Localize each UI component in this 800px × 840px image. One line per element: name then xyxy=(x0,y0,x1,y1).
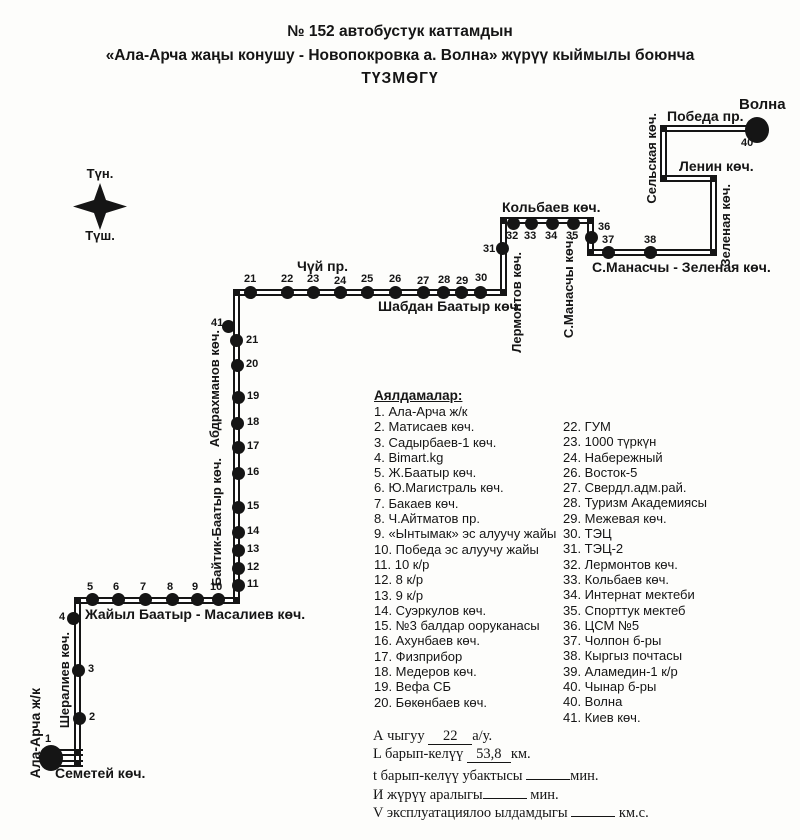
legend-column-left: 1. Ала-Арча ж/к2. Матисаев көч.3. Садырб… xyxy=(374,404,556,710)
stat-unit: км. xyxy=(511,746,531,762)
stop-number: 4 xyxy=(59,611,65,623)
legend-item: 35. Спорттук мектеб xyxy=(563,603,707,618)
legend-item: 8. Ч.Айтматов пр. xyxy=(374,511,556,526)
stop-dot xyxy=(232,441,245,454)
legend-item: 2. Матисаев көч. xyxy=(374,419,556,434)
legend-item: 22. ГУМ xyxy=(563,419,707,434)
legend-item: 3. Садырбаев-1 көч. xyxy=(374,435,556,450)
stop-number: 11 xyxy=(247,578,259,590)
route-scheme-page: № 152 автобустук каттамдын «Ала-Арча жаң… xyxy=(0,0,800,840)
stop-dot xyxy=(166,593,179,606)
street-label: Ала-Арча ж/к xyxy=(28,688,43,778)
stop-number: 7 xyxy=(140,581,146,593)
stop-dot xyxy=(232,526,245,539)
stop-number: 26 xyxy=(389,273,401,285)
legend-item: 36. ЦСМ №5 xyxy=(563,618,707,633)
stop-dot xyxy=(191,593,204,606)
stop-dot xyxy=(334,286,347,299)
route-corner xyxy=(660,175,667,182)
stat-value: 22 xyxy=(428,729,472,745)
stop-number: 15 xyxy=(247,500,259,512)
stop-number: 25 xyxy=(361,273,373,285)
street-label: Волна xyxy=(739,97,786,113)
stop-number: 38 xyxy=(644,234,656,246)
legend-item: 14. Суэркулов көч. xyxy=(374,603,556,618)
stop-dot xyxy=(232,467,245,480)
stop-dot xyxy=(232,544,245,557)
legend-item: 24. Набережный xyxy=(563,450,707,465)
stop-number: 20 xyxy=(246,358,258,370)
stop-number: 21 xyxy=(246,334,258,346)
stat-line: И жүрүү аралыгы мин. xyxy=(373,783,649,801)
stop-number: 28 xyxy=(438,274,450,286)
stop-number: 36 xyxy=(598,221,610,233)
route-corner xyxy=(710,175,717,182)
street-label: Семетей көч. xyxy=(55,766,145,781)
legend-title: Аялдамалар: xyxy=(374,388,462,403)
stop-number: 23 xyxy=(307,273,319,285)
stop-number: 2 xyxy=(89,711,95,723)
stop-dot xyxy=(496,242,509,255)
stop-number: 29 xyxy=(456,275,468,287)
stop-dot xyxy=(602,246,615,259)
street-label: Кольбаев көч. xyxy=(502,200,601,215)
stop-dot xyxy=(231,359,244,372)
stop-dot xyxy=(139,593,152,606)
legend-item: 13. 9 к/р xyxy=(374,588,556,603)
legend-item: 16. Ахунбаев көч. xyxy=(374,633,556,648)
stop-dot xyxy=(389,286,402,299)
stop-dot xyxy=(232,501,245,514)
route-segment xyxy=(660,175,716,182)
legend-item: 28. Туризм Академиясы xyxy=(563,495,707,510)
route-corner xyxy=(233,597,240,604)
stop-dot xyxy=(644,246,657,259)
stat-line: А чыгуу 22а/у. xyxy=(373,728,649,746)
legend-item: 30. ТЭЦ xyxy=(563,526,707,541)
street-label: Чүй пр. xyxy=(297,259,348,274)
stop-number: 5 xyxy=(87,581,93,593)
stat-value: 53,8 xyxy=(467,747,511,763)
stop-dot xyxy=(232,562,245,575)
legend-item: 10. Победа эс алуучу жайы xyxy=(374,542,556,557)
stop-dot xyxy=(67,612,80,625)
stop-dot xyxy=(232,579,245,592)
stop-number: 27 xyxy=(417,275,429,287)
route-corner xyxy=(587,217,594,224)
legend-item: 20. Бөкөнбаев көч. xyxy=(374,695,556,710)
legend-item: 11. 10 к/р xyxy=(374,557,556,572)
stop-dot xyxy=(112,593,125,606)
stop-number: 17 xyxy=(247,440,259,452)
stat-label: V эксплуатациялоо ылдамдыгы xyxy=(373,805,571,821)
street-label: Жайыл Баатыр - Масалиев көч. xyxy=(85,607,305,622)
legend-column-right: 22. ГУМ23. 1000 түркүн24. Набережный26. … xyxy=(563,419,707,725)
legend-item: 18. Медеров көч. xyxy=(374,664,556,679)
stop-dot xyxy=(525,217,538,230)
stop-dot xyxy=(361,286,374,299)
route-corner xyxy=(500,289,507,296)
legend-item: 6. Ю.Магистраль көч. xyxy=(374,480,556,495)
street-label: С.Манасчы көч. xyxy=(562,237,576,338)
stop-number: 40 xyxy=(741,137,753,149)
legend-item: 1. Ала-Арча ж/к xyxy=(374,404,556,419)
stop-number: 41 xyxy=(211,317,223,329)
street-label: Лермонтов көч. xyxy=(510,252,524,353)
stop-dot xyxy=(417,286,430,299)
route-corner xyxy=(233,289,240,296)
stat-value xyxy=(526,764,570,780)
stop-number: 19 xyxy=(247,390,259,402)
stop-number: 12 xyxy=(247,561,259,573)
stop-dot xyxy=(455,286,468,299)
route-corner xyxy=(74,597,81,604)
stop-dot xyxy=(507,217,520,230)
stat-value xyxy=(483,783,527,799)
stop-number: 18 xyxy=(247,416,259,428)
legend-item: 4. Bimart.kg xyxy=(374,450,556,465)
stop-number: 1 xyxy=(45,733,51,745)
street-label: Зеленая көч. xyxy=(719,184,733,267)
legend-item: 15. №3 балдар ооруканасы xyxy=(374,618,556,633)
stop-dot xyxy=(232,391,245,404)
stop-number: 21 xyxy=(244,273,256,285)
legend-item: 9. «Ынтымак» эс алуучу жайы xyxy=(374,526,556,541)
stop-dot xyxy=(437,286,450,299)
stop-number: 6 xyxy=(113,581,119,593)
stop-number: 33 xyxy=(524,230,536,242)
stop-number: 34 xyxy=(545,230,557,242)
legend-item: 29. Межевая көч. xyxy=(563,511,707,526)
stat-unit: км.с. xyxy=(615,805,649,821)
stat-line: t барып-келүү убактысы мин. xyxy=(373,764,649,782)
stop-dot xyxy=(86,593,99,606)
route-corner xyxy=(710,249,717,256)
legend-item: 27. Свердл.адм.рай. xyxy=(563,480,707,495)
legend-item: 32. Лермонтов көч. xyxy=(563,557,707,572)
stop-number: 9 xyxy=(192,581,198,593)
route-segment xyxy=(660,125,752,132)
legend-item: 19. Вефа СБ xyxy=(374,679,556,694)
stop-dot xyxy=(72,664,85,677)
stat-value xyxy=(571,801,615,817)
street-label: Шабдан Баатыр көч. xyxy=(378,299,522,314)
street-label: С.Манасчы - Зеленая көч. xyxy=(592,260,771,275)
legend-item: 5. Ж.Баатыр көч. xyxy=(374,465,556,480)
stat-line: V эксплуатациялоо ылдамдыгы км.с. xyxy=(373,801,649,819)
legend-item: 40. Волна xyxy=(563,694,707,709)
route-segment xyxy=(74,600,81,766)
legend-item: 33. Кольбаев көч. xyxy=(563,572,707,587)
street-label: Сельская көч. xyxy=(645,113,659,204)
route-corner xyxy=(500,217,507,224)
legend-item: 39. Аламедин-1 к/р xyxy=(563,664,707,679)
stop-dot xyxy=(546,217,559,230)
stop-dot xyxy=(230,334,243,347)
stat-label: А чыгуу xyxy=(373,728,428,744)
stop-number: 32 xyxy=(506,230,518,242)
stop-dot xyxy=(585,231,598,244)
street-label: Байтик-Баатыр көч. xyxy=(210,458,224,586)
legend-item: 26. Восток-5 xyxy=(563,465,707,480)
legend-item: 17. Физприбор xyxy=(374,649,556,664)
stop-number: 37 xyxy=(602,234,614,246)
stop-number: 8 xyxy=(167,581,173,593)
stop-dot xyxy=(222,320,235,333)
stop-dot xyxy=(73,712,86,725)
legend-item: 31. ТЭЦ-2 xyxy=(563,541,707,556)
street-label: Ленин көч. xyxy=(679,159,754,174)
stop-number: 30 xyxy=(475,272,487,284)
stop-dot xyxy=(231,417,244,430)
legend-item: 40. Чынар б-ры xyxy=(563,679,707,694)
stop-dot xyxy=(281,286,294,299)
stop-number: 24 xyxy=(334,275,346,287)
stop-dot xyxy=(244,286,257,299)
stop-number: 14 xyxy=(247,525,259,537)
legend-item: 23. 1000 түркүн xyxy=(563,434,707,449)
street-label: Шералиев көч. xyxy=(58,632,72,728)
stop-number: 13 xyxy=(247,543,259,555)
stop-dot xyxy=(307,286,320,299)
route-segment xyxy=(660,125,667,181)
stat-line: L барып-келүү 53,8км. xyxy=(373,746,649,764)
route-corner xyxy=(660,125,667,132)
legend-item: 41. Киев көч. xyxy=(563,710,707,725)
legend-item: 34. Интернат мектеби xyxy=(563,587,707,602)
stop-number: 22 xyxy=(281,273,293,285)
stop-dot xyxy=(567,217,580,230)
legend-item: 7. Бакаев көч. xyxy=(374,496,556,511)
stat-unit: мин. xyxy=(570,768,598,784)
stop-number: 31 xyxy=(483,243,495,255)
stats-block: А чыгуу 22а/у.L барып-келүү 53,8км.t бар… xyxy=(373,728,649,819)
route-corner xyxy=(74,749,81,756)
route-segment xyxy=(710,175,717,255)
legend-item: 37. Чолпон б-ры xyxy=(563,633,707,648)
stop-dot xyxy=(474,286,487,299)
legend-item: 38. Кыргыз почтасы xyxy=(563,648,707,663)
stop-number: 16 xyxy=(247,466,259,478)
stat-label: L барып-келүү xyxy=(373,746,467,762)
stop-number: 3 xyxy=(88,663,94,675)
stat-unit: а/у. xyxy=(472,728,492,744)
street-label: Победа пр. xyxy=(667,109,744,124)
legend-item: 12. 8 к/р xyxy=(374,572,556,587)
street-label: Абдрахманов көч. xyxy=(208,330,222,447)
stop-dot xyxy=(212,593,225,606)
route-corner xyxy=(587,249,594,256)
